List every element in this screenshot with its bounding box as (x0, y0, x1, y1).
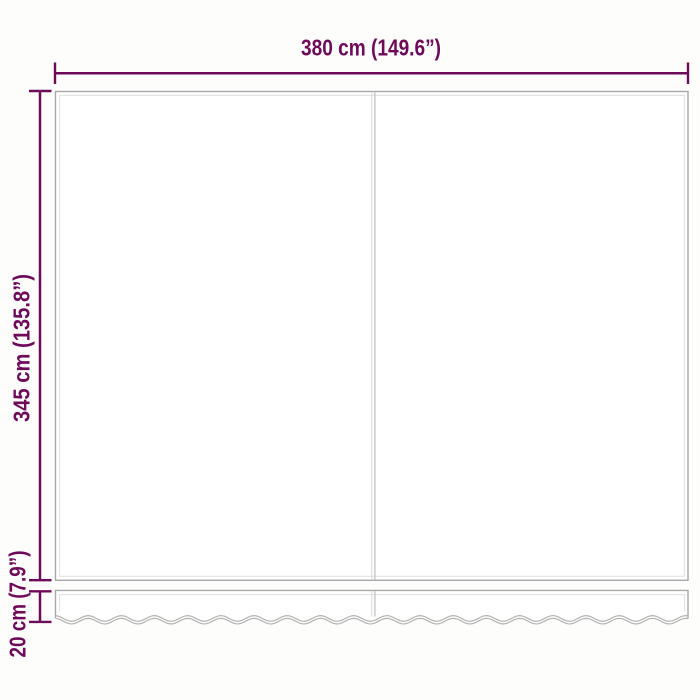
svg-text:380 cm (149.6”): 380 cm (149.6”) (301, 34, 441, 60)
svg-text:20 cm (7.9”): 20 cm (7.9”) (5, 551, 31, 658)
svg-text:345 cm (135.8”): 345 cm (135.8”) (9, 274, 35, 422)
